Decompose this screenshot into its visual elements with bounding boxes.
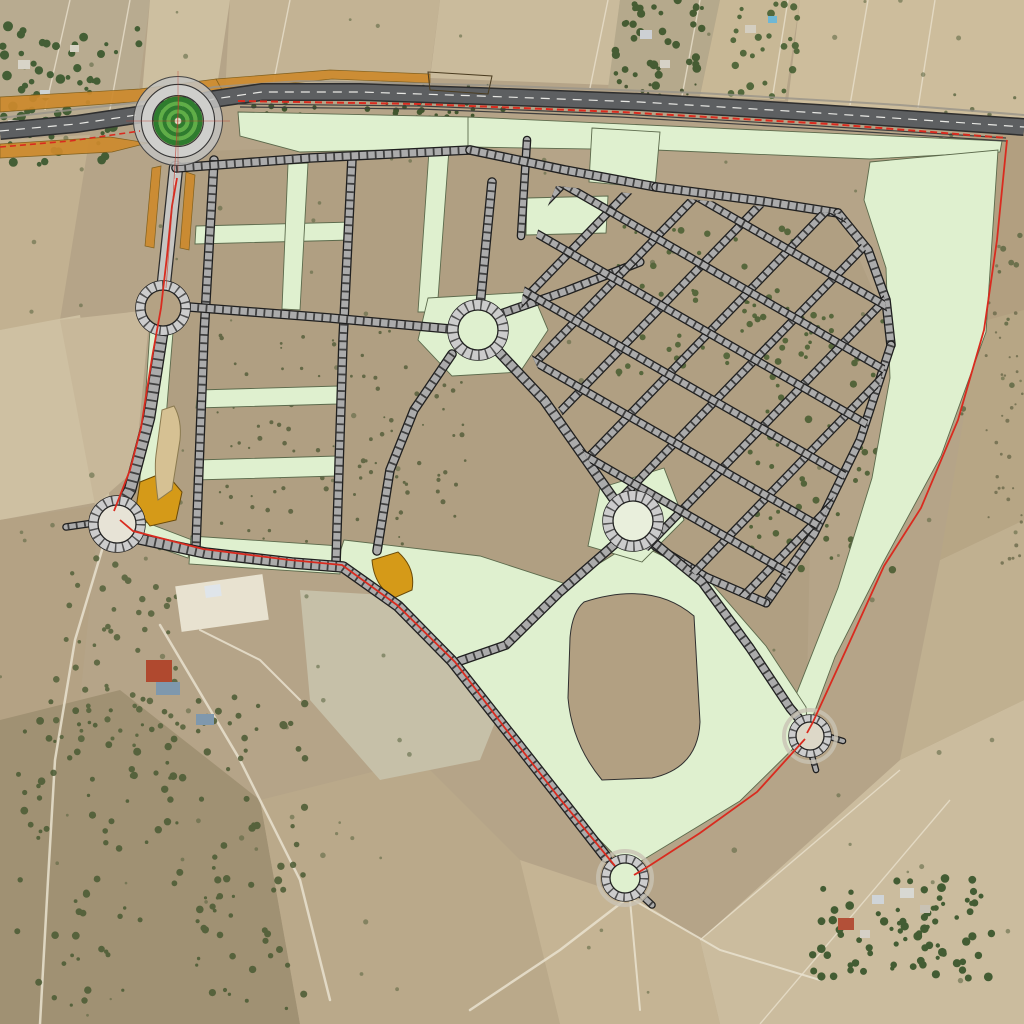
tree [230,445,232,447]
tree [204,900,208,904]
tree [693,298,698,303]
tree [1006,929,1011,934]
tree [792,42,799,49]
tree [707,33,710,36]
tree [829,328,834,333]
tree [318,375,320,377]
tree [165,743,172,750]
tree [350,836,354,840]
tree [790,3,797,10]
tree [362,375,366,379]
tree [204,896,207,899]
tree [659,292,664,297]
aerial-site-plan [0,0,1024,1024]
tree [1004,374,1006,376]
tree [921,914,928,921]
tree [970,888,977,895]
tree [20,807,28,815]
tree [757,534,762,539]
tree [390,430,393,433]
tree [129,766,135,772]
tree [88,76,93,81]
village-house [920,905,930,913]
tree [836,512,840,516]
tree [229,953,236,960]
tree [138,917,143,922]
tree [910,963,917,970]
tree [318,201,322,205]
tree [101,131,105,135]
tree [204,748,211,755]
tree [262,537,264,539]
tree [245,372,249,376]
tree [285,1007,288,1010]
tree [760,47,764,51]
tree [907,871,910,874]
village-house [872,895,884,904]
tree [155,826,162,833]
tree [919,864,924,869]
tree [779,345,785,351]
tree [28,822,34,828]
tree [321,698,326,703]
tree [383,416,385,418]
tree [936,956,940,960]
tree [180,724,186,730]
tree [896,908,900,912]
tree [359,476,362,479]
tree [135,26,141,32]
tree [734,29,739,34]
tree [78,640,82,644]
site-plan-canvas [0,0,1024,1024]
tree [136,610,142,616]
tree [629,21,636,28]
tree [1001,377,1005,381]
tree [105,741,112,748]
tree [335,832,338,835]
tree [29,79,35,85]
tree [678,227,685,234]
tree [724,161,727,164]
tree [890,962,897,969]
tree [781,43,788,50]
tree [145,840,149,844]
tree [300,991,307,998]
tree [988,930,995,937]
tree [105,624,111,630]
tree [917,957,925,965]
tree [35,979,42,986]
tree [921,886,928,893]
tree [997,245,1001,249]
tree [1009,382,1015,388]
tree [988,516,990,518]
tree [959,966,966,973]
tree [1014,262,1020,268]
tree [845,901,854,910]
tree [251,495,253,497]
tree [74,749,81,756]
tree [436,478,440,482]
tree [781,1,788,8]
tree [419,107,425,113]
tree [931,906,936,911]
tree [925,925,929,929]
tree [742,309,747,314]
tree [921,944,928,951]
tree [932,918,938,924]
tree [316,448,320,452]
tree [48,699,53,704]
tree [916,930,922,936]
tree [300,367,303,370]
tree [631,35,638,42]
tree [93,77,100,84]
tree [784,228,791,235]
tree [1001,373,1004,376]
tree [434,394,439,399]
tree [82,687,88,693]
tree [459,34,462,37]
tree [265,508,270,513]
tree [760,314,766,320]
tree [1012,487,1014,489]
tree [108,629,113,634]
tree [748,450,753,455]
tree [175,722,179,726]
tree [804,355,808,359]
tree [1021,393,1024,396]
tree [234,362,237,365]
tree [766,33,771,38]
tree [3,21,13,31]
tree [442,408,445,411]
tree [773,2,778,7]
tree [772,649,775,652]
tree [123,906,126,909]
tree [217,893,223,899]
tree [697,251,701,255]
tree [856,937,862,943]
tree [36,836,40,840]
tree [1013,96,1016,99]
tree [1010,406,1014,410]
tree [941,902,945,906]
tree [232,895,235,898]
tree [304,594,308,598]
tree [166,630,170,634]
tree [112,561,118,567]
tree [893,877,900,884]
tree [112,607,117,612]
tree [805,345,810,350]
tree [600,929,604,933]
tree [732,847,738,853]
tree [244,796,250,802]
tree [740,50,747,57]
tree [789,66,796,73]
tree [369,437,373,441]
tree [167,796,173,802]
tree [164,818,171,825]
tree [351,413,356,418]
tree [294,842,300,848]
tree [798,565,805,572]
tree [640,284,645,289]
tree [659,28,667,36]
tree [417,461,421,465]
tree [995,331,997,333]
tree [894,941,899,946]
tree [110,998,112,1000]
tree [1005,419,1009,423]
tree [936,943,940,947]
tree [996,475,999,478]
tree [755,316,761,322]
tree [808,341,812,345]
tree [407,752,412,757]
tree [232,694,238,700]
tree [567,340,572,345]
tree [288,721,293,726]
tree [1001,415,1003,417]
tree [889,927,893,931]
tree [360,972,364,976]
tree [937,895,943,901]
tree [168,713,173,718]
tree [865,471,870,476]
tree [990,738,995,743]
tree [650,260,655,265]
tree [405,490,410,495]
tree [131,772,138,779]
tree [829,916,837,924]
tree [70,1004,73,1007]
tree [782,89,787,94]
tree [305,540,308,543]
tree [358,465,362,469]
tree [47,71,54,78]
tree [675,342,681,348]
tree [247,529,250,532]
tree [14,928,20,934]
tree [114,634,121,641]
tree [79,33,88,42]
tree [264,930,271,937]
tree [849,843,852,846]
tree [73,665,79,671]
tree [55,861,59,865]
tree [365,106,371,112]
tree [804,332,808,336]
tree [109,818,115,824]
tree [1014,311,1018,315]
tree [876,911,881,916]
field [788,0,1024,120]
tree [692,290,699,297]
tree [931,880,935,884]
farm-building-blue [196,714,214,725]
tree [1006,318,1009,321]
tree [700,6,704,10]
tree [647,60,654,67]
tree [175,821,178,824]
tree [277,423,281,427]
tree [889,566,896,573]
tree [373,376,377,380]
tree [251,104,255,108]
tree [9,158,18,167]
tree [441,499,446,504]
tree [587,946,591,950]
tree [975,952,982,959]
tree [161,786,168,793]
tree [277,863,284,870]
tree [296,746,302,752]
tree [769,464,774,469]
tree [43,40,51,48]
tree [316,665,320,669]
tree [825,524,829,528]
tree [2,71,11,80]
tree [218,206,223,211]
tree [149,727,155,733]
tree [612,51,620,59]
tree [810,968,817,975]
tree [23,729,27,733]
tree [1014,530,1018,534]
tree [288,509,293,514]
tree [453,515,456,518]
tree [698,25,705,32]
tree [862,449,869,456]
tree [86,704,91,709]
tree [349,18,352,21]
tree [998,487,1001,490]
tree [649,83,652,86]
tree [106,952,111,957]
tree [1006,498,1010,502]
tree [829,314,834,319]
tree [37,795,42,800]
tree [132,704,137,709]
tree [73,64,81,72]
tree [995,441,999,445]
tree [219,334,223,338]
tree [747,301,750,304]
tree [382,654,386,658]
tree [1000,246,1006,252]
tree [302,755,309,762]
tree [245,999,249,1003]
tree [229,913,234,918]
tree [212,854,217,859]
tree [219,491,221,493]
tree [160,654,165,659]
tree [50,523,55,528]
tree [320,853,326,859]
tree [903,937,907,941]
tree [133,748,141,756]
tree [647,991,650,994]
tree [226,767,230,771]
tree [622,66,629,73]
tree [730,37,736,43]
tree [818,917,826,925]
tree [376,387,380,391]
tree [46,735,53,742]
tree [1016,355,1018,357]
tree [798,351,804,357]
tree [70,954,74,958]
tree [286,427,291,432]
tree [223,988,227,992]
tree [399,510,403,514]
tree [1009,356,1011,358]
tree [734,237,738,241]
tree [830,973,838,981]
tree [1001,561,1004,564]
tree [135,40,142,47]
tree [633,4,640,11]
tree [271,887,276,892]
tree [125,882,128,885]
tree [1000,453,1003,456]
tree [105,687,110,692]
tree [104,42,108,46]
tree [723,352,730,359]
tree [443,383,447,387]
tree [361,354,364,357]
tree [248,882,254,888]
tree [292,450,295,453]
tree [116,845,123,852]
tree [813,497,820,504]
tree [624,85,628,89]
village-house-red [838,918,854,930]
tree [141,723,144,726]
tree [210,904,216,910]
tree [88,721,92,725]
tree [953,959,961,967]
tree [652,81,660,89]
tree [75,583,80,588]
tree [132,744,136,748]
tree [77,80,83,86]
tree [238,441,241,444]
tree [824,951,832,959]
tree [217,932,224,939]
tree [694,83,696,85]
tree [749,525,753,529]
tree [817,944,826,953]
tree [44,826,50,832]
green-path [196,386,339,408]
tree [93,643,97,647]
tree [135,648,140,653]
tree [280,347,282,349]
tree [74,899,78,903]
field [430,0,620,85]
tree [395,475,398,478]
tree [953,93,956,96]
tree [280,342,283,345]
tree [89,62,94,67]
tree [625,363,631,369]
tree [51,931,59,939]
tree [994,491,997,494]
